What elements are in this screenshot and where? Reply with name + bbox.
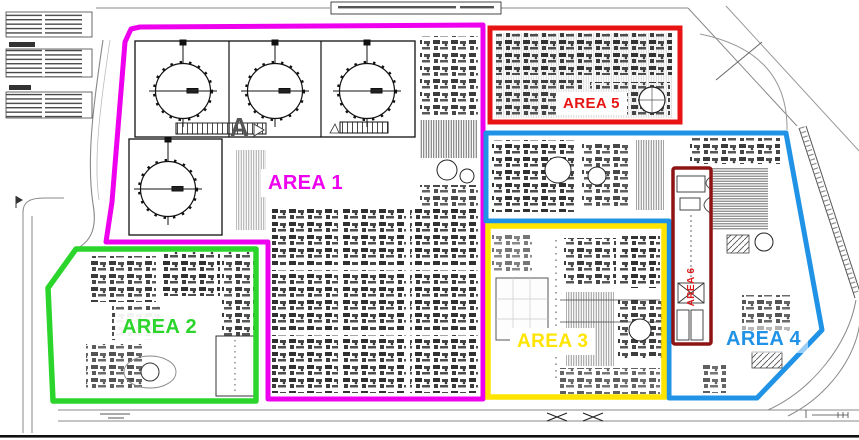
plot-plan: A <box>0 0 859 440</box>
crossing-mark-icon <box>547 413 567 421</box>
dimension-annotation <box>806 410 848 418</box>
drawing-title-box <box>331 2 501 14</box>
area3-label: AREA 3 <box>510 328 595 355</box>
note-heading <box>9 85 31 90</box>
section-marker-letter: A <box>230 112 249 142</box>
area5-label: AREA 5 <box>556 92 627 115</box>
building <box>216 336 254 396</box>
area6-label: AREA 6 <box>687 256 697 318</box>
site-plan-drawing: A <box>0 0 859 440</box>
note-heading <box>9 42 35 47</box>
tank-farm <box>129 40 415 235</box>
area2-label: AREA 2 <box>115 313 204 341</box>
crossing-mark-icon <box>583 413 603 421</box>
area4-label: AREA 4 <box>719 325 808 353</box>
area1-label: AREA 1 <box>261 169 350 197</box>
notes-column <box>6 12 92 118</box>
bottom-border-line <box>0 435 859 438</box>
flag-marker-icon <box>16 196 23 204</box>
